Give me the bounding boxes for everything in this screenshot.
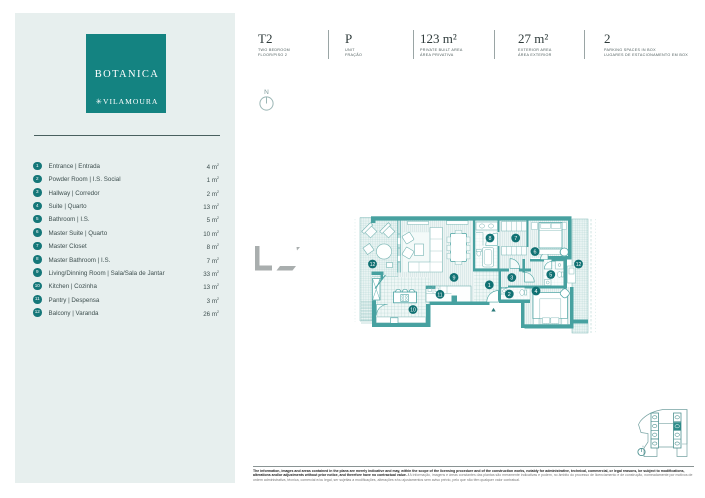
svg-text:7: 7 xyxy=(514,236,517,242)
svg-text:1: 1 xyxy=(488,283,491,289)
svg-text:N: N xyxy=(264,89,269,96)
svg-text:10: 10 xyxy=(410,308,416,314)
svg-text:2: 2 xyxy=(508,292,511,298)
svg-text:5: 5 xyxy=(549,273,552,279)
svg-text:3: 3 xyxy=(510,276,513,282)
svg-text:9: 9 xyxy=(453,275,456,281)
svg-text:12: 12 xyxy=(370,262,376,268)
svg-text:8: 8 xyxy=(489,236,492,242)
svg-text:11: 11 xyxy=(437,292,442,298)
svg-text:4: 4 xyxy=(535,289,538,295)
svg-text:12: 12 xyxy=(576,262,582,268)
svg-text:6: 6 xyxy=(534,250,537,256)
